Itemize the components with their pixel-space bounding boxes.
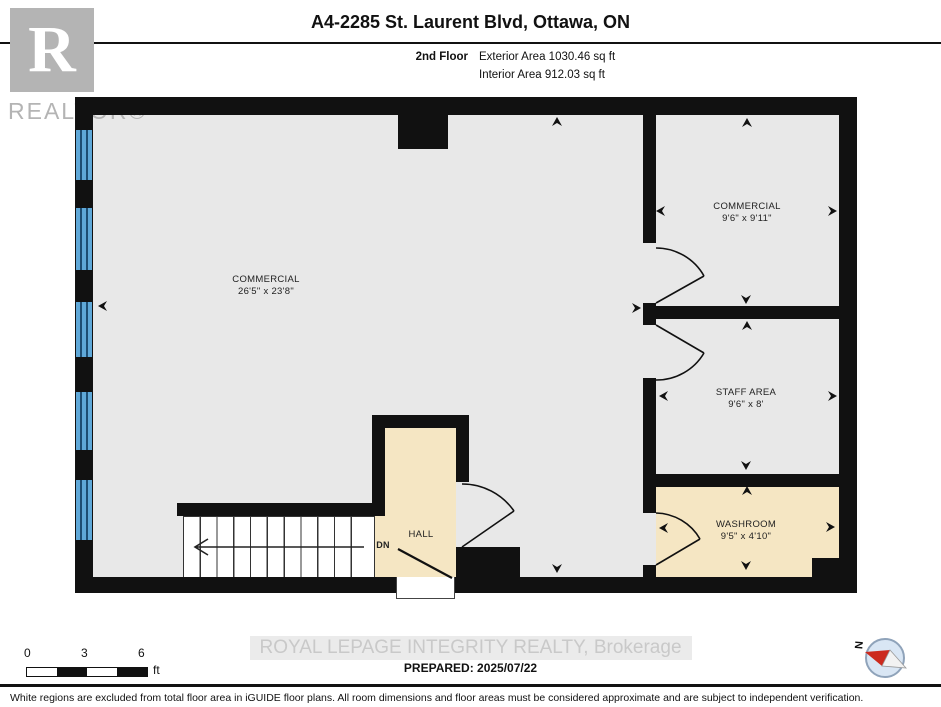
wall-hall-bottom-chunk — [456, 547, 520, 577]
wall-top — [75, 97, 857, 115]
disclaimer-text: White regions are excluded from total fl… — [10, 692, 863, 704]
room-label-commercial-main: COMMERCIAL 26'5" x 23'8" — [166, 274, 366, 298]
staircase — [183, 516, 375, 579]
stairs-dn-label: DN — [372, 540, 394, 551]
floor-label: 2nd Floor — [380, 51, 468, 63]
header-divider — [0, 42, 941, 44]
wall-interior-vertical-lower — [643, 565, 656, 577]
room-name: COMMERCIAL — [667, 201, 827, 213]
room-label-washroom: WASHROOM 9'5" x 4'10" — [666, 519, 826, 543]
room-dims: 26'5" x 23'8" — [166, 286, 366, 298]
wall-top-notch — [398, 115, 448, 149]
wall-staff-washroom — [643, 474, 839, 487]
interior-area: Interior Area 912.03 sq ft — [479, 69, 605, 81]
wall-hall-right — [456, 428, 469, 482]
window — [76, 302, 92, 357]
wall-interior-vertical-mid — [643, 378, 656, 513]
prepared-date: PREPARED: 2025/07/22 — [0, 661, 941, 675]
room-name: HALL — [391, 529, 451, 541]
wall-right — [839, 97, 857, 593]
room-label-commercial-small: COMMERCIAL 9'6" x 9'11" — [667, 201, 827, 225]
wall-commercial-staff — [643, 306, 839, 319]
room-dims: 9'6" x 9'11" — [667, 213, 827, 225]
room-dims: 9'6" x 8' — [666, 399, 826, 411]
floor-plan-page: R REALTOR® A4-2285 St. Laurent Blvd, Ott… — [0, 0, 941, 707]
room-name: WASHROOM — [666, 519, 826, 531]
room-label-hall: HALL — [391, 529, 451, 541]
room-label-staff-area: STAFF AREA 9'6" x 8' — [666, 387, 826, 411]
exterior-door — [396, 577, 455, 599]
wall-hall-top — [372, 415, 469, 428]
wall-stairs-top — [177, 503, 385, 516]
window — [76, 480, 92, 540]
window — [76, 392, 92, 450]
realtor-logo-icon: R — [10, 8, 94, 92]
wall-interior-vertical-upper — [643, 115, 656, 243]
room-name: STAFF AREA — [666, 387, 826, 399]
window — [76, 208, 92, 270]
brokerage-watermark: ROYAL LEPAGE INTEGRITY REALTY, Brokerage — [249, 636, 691, 660]
room-name: COMMERCIAL — [166, 274, 366, 286]
footer-divider — [0, 684, 941, 687]
exterior-area: Exterior Area 1030.46 sq ft — [479, 51, 615, 63]
scale-tick: 0 — [24, 646, 31, 660]
scale-tick: 6 — [138, 646, 145, 660]
realtor-logo-letter: R — [28, 12, 76, 88]
scale-tick: 3 — [81, 646, 88, 660]
wall-washroom-notch — [812, 558, 839, 577]
wall-hall-left — [372, 415, 385, 515]
wall-bottom — [75, 577, 857, 593]
floor-hall — [385, 428, 456, 577]
window — [76, 130, 92, 180]
compass-north-label: N — [852, 641, 865, 650]
room-dims: 9'5" x 4'10" — [666, 531, 826, 543]
page-title: A4-2285 St. Laurent Blvd, Ottawa, ON — [0, 12, 941, 33]
